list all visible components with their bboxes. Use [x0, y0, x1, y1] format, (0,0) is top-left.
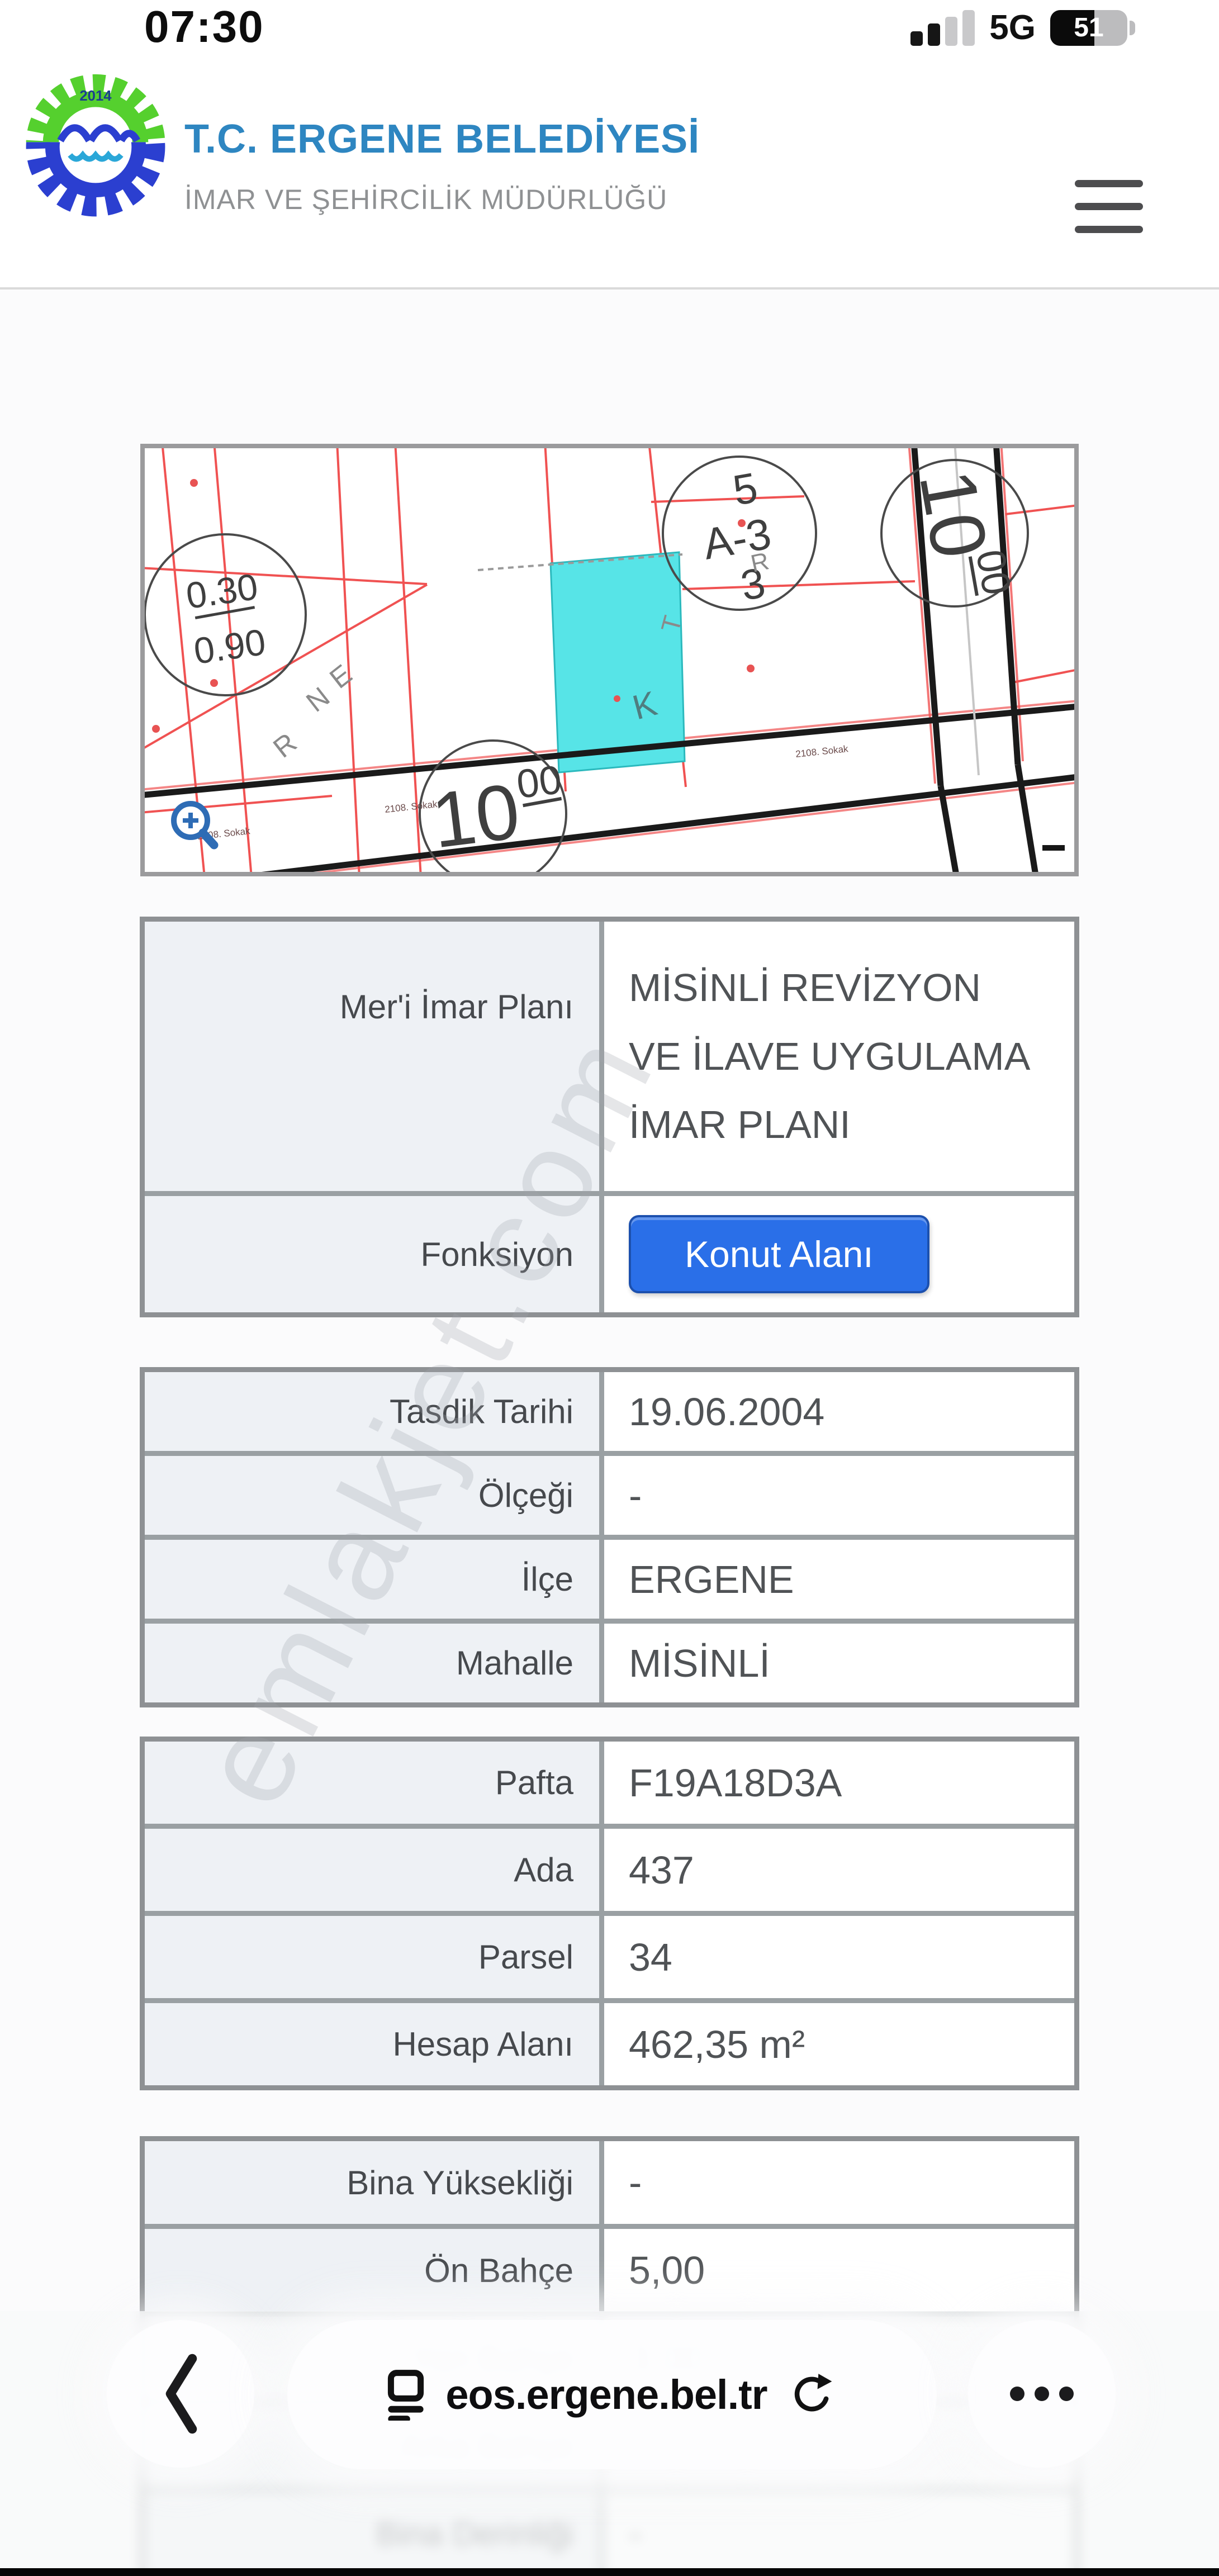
browser-back-button[interactable]: [107, 2320, 254, 2468]
page-content: 0.30 0.90 5 A-3 3 10 00: [0, 292, 1219, 2576]
clock: 07:30: [144, 1, 264, 53]
hamburger-menu-icon[interactable]: [1075, 180, 1143, 233]
row-value: MİSİNLİ REVİZYON VE İLAVE UYGULAMA İMAR …: [604, 922, 1074, 1191]
parcel-info-table: Pafta F19A18D3A Ada 437 Parsel 34 Hesap …: [140, 1737, 1079, 2090]
site-header: 2014 T.C. ERGENE BELEDİYESİ İMAR VE ŞEHİ…: [0, 56, 1219, 290]
table-row: Fonksiyon Konut Alanı: [145, 1196, 1074, 1312]
svg-text:10: 10: [903, 463, 1005, 564]
zoning-map: 0.30 0.90 5 A-3 3 10 00: [140, 444, 1079, 876]
page-title: T.C. ERGENE BELEDİYESİ: [184, 116, 700, 162]
chevron-left-icon: [155, 2352, 206, 2436]
browser-more-button[interactable]: [968, 2320, 1116, 2468]
row-label: Mahalle: [145, 1624, 604, 1702]
row-label: Ada: [145, 1829, 604, 1911]
table-row: Mer'i İmar Planı MİSİNLİ REVİZYON VE İLA…: [145, 922, 1074, 1191]
reader-view-icon: [387, 2369, 424, 2421]
battery-percent: 51: [1050, 10, 1127, 46]
row-value: ERGENE: [604, 1540, 1074, 1619]
row-value: 34: [604, 1916, 1074, 1998]
table-row: Tasdik Tarihi 19.06.2004: [145, 1372, 1074, 1451]
page-subtitle: İMAR VE ŞEHİRCİLİK MÜDÜRLÜĞÜ: [184, 183, 700, 216]
row-label: Parsel: [145, 1916, 604, 1998]
iphone-screen: 07:30 5G 51 2014: [0, 0, 1219, 2576]
cellular-signal-icon: [910, 10, 975, 46]
row-label: İlçe: [145, 1540, 604, 1619]
highlighted-parcel: [551, 552, 685, 772]
row-value: 5,00: [604, 2229, 1074, 2312]
network-type-label: 5G: [989, 8, 1036, 48]
status-bar: 07:30 5G 51: [0, 0, 1219, 56]
row-label: Bina Yüksekliği: [145, 2141, 604, 2224]
battery-icon: 51: [1050, 10, 1135, 46]
function-button[interactable]: Konut Alanı: [629, 1215, 929, 1293]
row-label: Ön Bahçe: [145, 2229, 604, 2312]
row-value: 19.06.2004: [604, 1372, 1074, 1451]
table-row: Ada 437: [145, 1829, 1074, 1911]
table-row: Ön Bahçe 5,00: [145, 2229, 1074, 2312]
row-value: 437: [604, 1829, 1074, 1911]
row-value: -: [604, 1456, 1074, 1535]
home-indicator-bar: [0, 2568, 1219, 2576]
row-value: F19A18D3A: [604, 1742, 1074, 1824]
row-label: Ölçeği: [145, 1456, 604, 1535]
svg-text:10: 10: [427, 767, 524, 865]
location-info-table: Tasdik Tarihi 19.06.2004 Ölçeği - İlçe E…: [140, 1367, 1079, 1707]
row-label: Fonksiyon: [145, 1196, 604, 1312]
plan-info-table: Mer'i İmar Planı MİSİNLİ REVİZYON VE İLA…: [140, 917, 1079, 1317]
row-label: Hesap Alanı: [145, 2003, 604, 2085]
row-value: MİSİNLİ: [604, 1624, 1074, 1702]
row-value: 462,35 m²: [604, 2003, 1074, 2085]
zoning-map-image: 0.30 0.90 5 A-3 3 10 00: [145, 448, 1074, 872]
table-row: Hesap Alanı 462,35 m²: [145, 2003, 1074, 2085]
row-label: Tasdik Tarihi: [145, 1372, 604, 1451]
row-value: -: [604, 2141, 1074, 2224]
municipality-logo: 2014: [16, 67, 176, 227]
row-label: Pafta: [145, 1742, 604, 1824]
table-row: İlçe ERGENE: [145, 1540, 1074, 1619]
refresh-icon[interactable]: [789, 2369, 837, 2421]
address-bar[interactable]: eos.ergene.bel.tr: [287, 2320, 937, 2469]
table-row: Pafta F19A18D3A: [145, 1742, 1074, 1824]
table-row: Mahalle MİSİNLİ: [145, 1624, 1074, 1702]
logo-year: 2014: [79, 88, 112, 104]
row-label: Mer'i İmar Planı: [145, 922, 604, 1191]
ellipsis-icon: [1010, 2387, 1074, 2401]
table-row: Parsel 34: [145, 1916, 1074, 1998]
url-label: eos.ergene.bel.tr: [445, 2371, 767, 2418]
table-row: Ölçeği -: [145, 1456, 1074, 1535]
table-row: Bina Yüksekliği -: [145, 2141, 1074, 2224]
